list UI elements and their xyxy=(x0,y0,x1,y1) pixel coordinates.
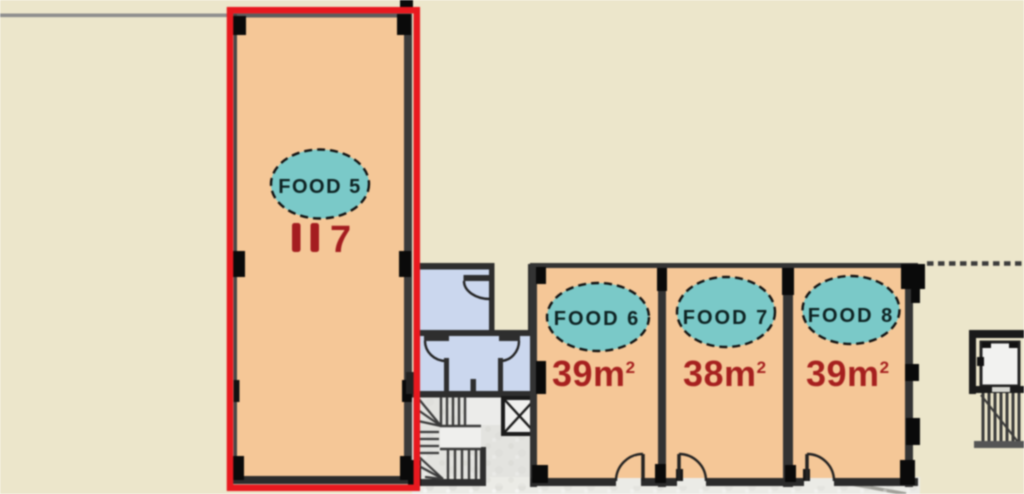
svg-text:39m2: 39m2 xyxy=(806,353,890,394)
svg-text:FOOD 5: FOOD 5 xyxy=(278,176,361,198)
svg-text:FOOD 7: FOOD 7 xyxy=(683,307,769,329)
svg-text:7: 7 xyxy=(330,219,351,261)
svg-text:FOOD 6: FOOD 6 xyxy=(554,308,640,330)
svg-text:FOOD 8: FOOD 8 xyxy=(808,305,894,327)
svg-text:38m2: 38m2 xyxy=(683,353,767,394)
svg-text:39m2: 39m2 xyxy=(552,353,636,394)
